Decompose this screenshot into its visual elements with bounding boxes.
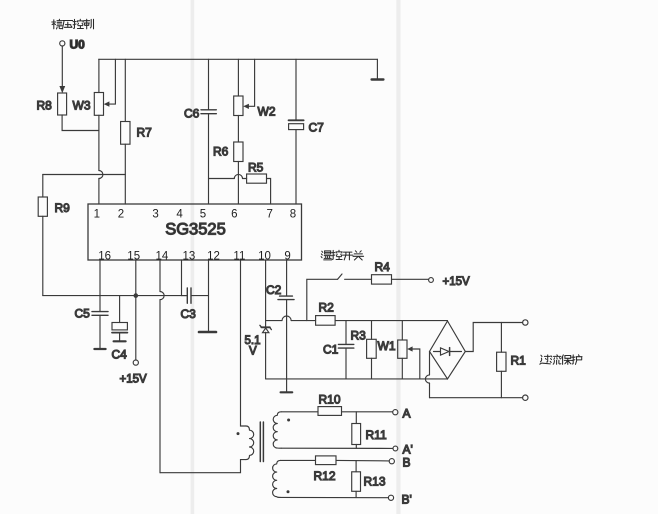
svg-text:W2: W2 — [258, 105, 276, 119]
svg-text:11: 11 — [233, 251, 245, 263]
svg-text:13: 13 — [183, 251, 196, 263]
svg-text:2: 2 — [118, 209, 124, 221]
svg-text:R4: R4 — [375, 260, 391, 274]
svg-text:SG3525: SG3525 — [165, 221, 226, 239]
svg-text:C5: C5 — [75, 307, 91, 321]
svg-text:V: V — [249, 346, 257, 358]
svg-text:C4: C4 — [112, 348, 128, 362]
svg-text:+15V: +15V — [120, 374, 148, 386]
svg-text:B: B — [403, 456, 411, 470]
svg-text:R1: R1 — [511, 354, 527, 368]
svg-text:C1: C1 — [323, 343, 339, 357]
svg-text:9: 9 — [284, 251, 290, 263]
svg-text:C6: C6 — [184, 107, 200, 121]
svg-text:15: 15 — [127, 251, 140, 263]
svg-text:R7: R7 — [137, 126, 153, 140]
svg-text:R3: R3 — [351, 329, 367, 343]
svg-text:R12: R12 — [314, 469, 336, 483]
svg-text:R6: R6 — [213, 145, 229, 159]
svg-text:R10: R10 — [319, 393, 341, 407]
svg-text:U0: U0 — [70, 38, 86, 52]
svg-text:R13: R13 — [364, 475, 386, 489]
svg-text:A: A — [403, 407, 411, 421]
svg-text:R2: R2 — [319, 301, 335, 315]
svg-text:C7: C7 — [309, 121, 325, 135]
svg-text:8: 8 — [290, 209, 296, 221]
svg-text:4: 4 — [176, 209, 183, 221]
svg-text:R8: R8 — [37, 99, 53, 113]
svg-text:R5: R5 — [248, 161, 264, 175]
svg-text:7: 7 — [266, 209, 272, 221]
svg-text:C3: C3 — [181, 307, 197, 321]
svg-text:R11: R11 — [366, 428, 387, 442]
svg-text:W3: W3 — [73, 99, 91, 113]
svg-text:C2: C2 — [266, 283, 282, 297]
svg-text:A': A' — [403, 443, 413, 457]
svg-text:10: 10 — [258, 251, 271, 263]
svg-text:B': B' — [402, 493, 412, 507]
svg-text:5: 5 — [200, 209, 206, 221]
svg-text:W1: W1 — [378, 339, 396, 353]
svg-text:14: 14 — [156, 251, 169, 263]
svg-text:R9: R9 — [55, 201, 71, 215]
svg-text:1: 1 — [94, 209, 100, 221]
svg-text:3: 3 — [152, 209, 158, 221]
svg-text:+15V: +15V — [443, 276, 471, 288]
svg-text:6: 6 — [231, 209, 237, 221]
